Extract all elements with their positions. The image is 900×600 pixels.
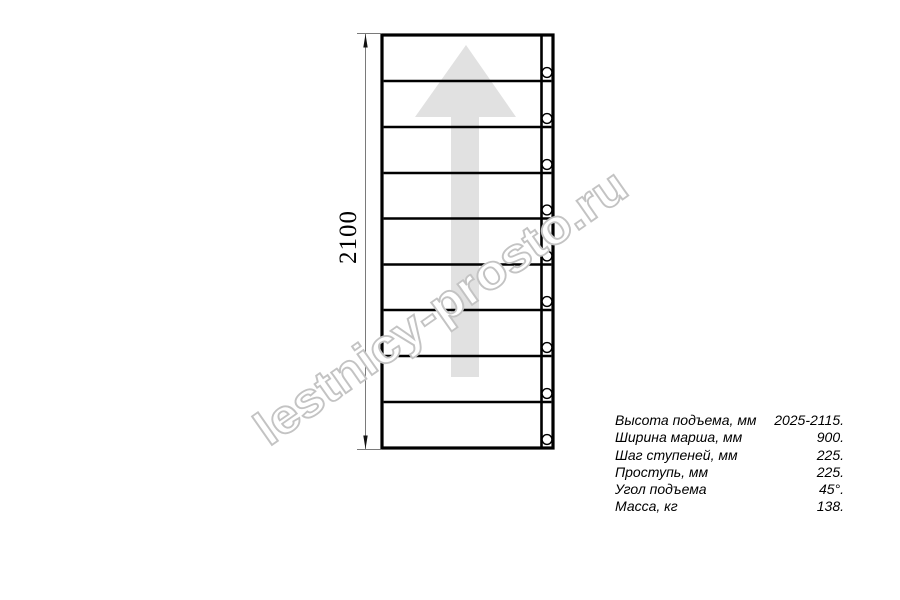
bolt-hole-circle bbox=[542, 68, 552, 78]
spec-value: 138. bbox=[817, 498, 844, 515]
spec-row-tread: Проступь, мм 225. bbox=[615, 464, 844, 481]
bolt-hole-circle bbox=[542, 343, 552, 353]
bolt-hole-circle bbox=[542, 160, 552, 170]
spec-row-height: Высота подъема, мм 2025-2115. bbox=[615, 412, 844, 429]
spec-row-width: Ширина марша, мм 900. bbox=[615, 429, 844, 446]
drawing-canvas: lestnicy-prosto.ru 2100 Высота подъема, … bbox=[0, 0, 900, 600]
spec-value: 225. bbox=[817, 447, 844, 464]
dimension-arrowhead-up-icon bbox=[363, 34, 367, 48]
bolt-hole-circle bbox=[542, 389, 552, 399]
spec-row-mass: Масса, кг 138. bbox=[615, 498, 844, 515]
spec-label: Высота подъема, мм bbox=[615, 412, 757, 429]
bolt-hole-circle bbox=[542, 435, 552, 445]
spec-label: Масса, кг bbox=[615, 498, 678, 515]
specs-table: Высота подъема, мм 2025-2115. Ширина мар… bbox=[615, 412, 844, 516]
spec-value: 2025-2115. bbox=[774, 412, 844, 429]
spec-value: 900. bbox=[817, 429, 844, 446]
spec-value: 45°. bbox=[819, 481, 844, 498]
bolt-hole-circle bbox=[542, 114, 552, 124]
spec-row-step-pitch: Шаг ступеней, мм 225. bbox=[615, 447, 844, 464]
watermark-text: lestnicy-prosto.ru bbox=[245, 159, 637, 456]
spec-value: 225. bbox=[817, 464, 844, 481]
bolt-hole-circle bbox=[542, 297, 552, 307]
dimension-label: 2100 bbox=[336, 195, 362, 279]
spec-label: Шаг ступеней, мм bbox=[615, 447, 738, 464]
dimension-arrowhead-down-icon bbox=[363, 436, 367, 450]
spec-label: Ширина марша, мм bbox=[615, 429, 742, 446]
spec-row-angle: Угол подъема 45°. bbox=[615, 481, 844, 498]
spec-label: Угол подъема bbox=[615, 481, 707, 498]
spec-label: Проступь, мм bbox=[615, 464, 708, 481]
